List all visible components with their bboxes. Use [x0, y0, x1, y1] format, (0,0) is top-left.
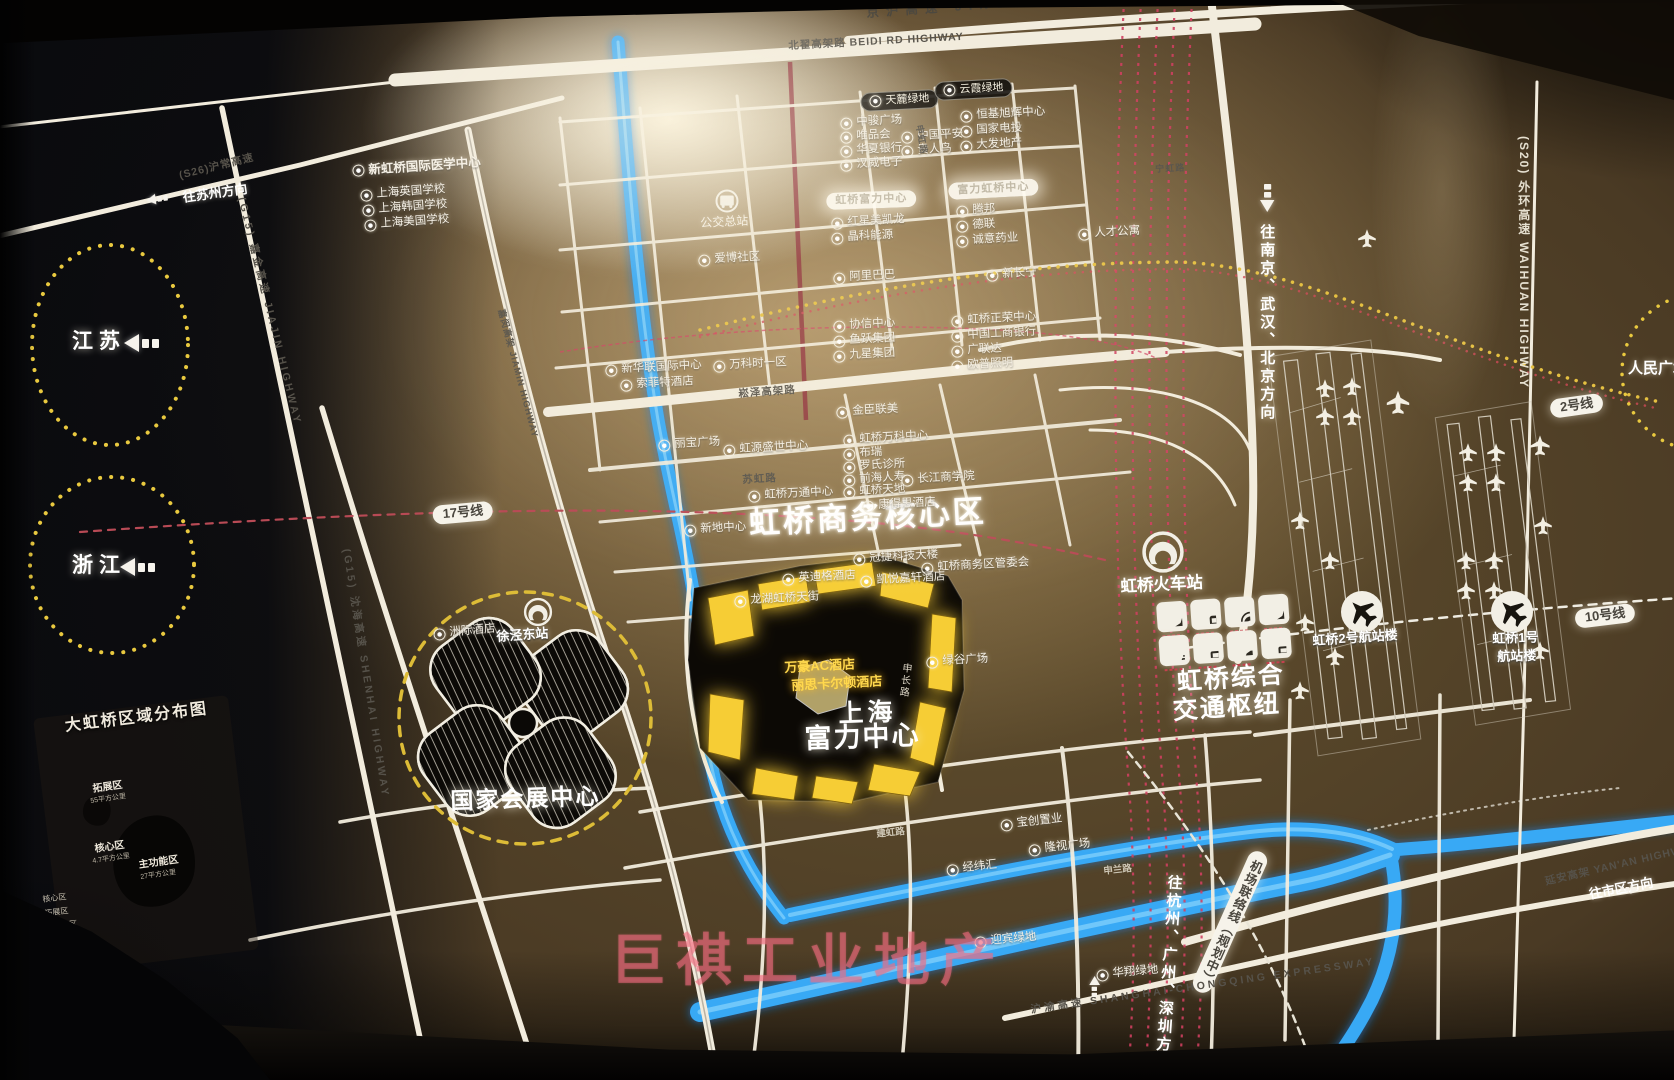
hub-transport-icon-grid — [1156, 593, 1292, 666]
renmin-square-label-text: 人民广场 — [1628, 360, 1674, 377]
tianlu-green-pill: 天麓绿地 — [860, 89, 939, 112]
arrow-head-icon — [1260, 200, 1274, 212]
poi-sofitel-text: 索菲特酒店 — [636, 375, 694, 391]
legend-tuozhan-text: 拓展区 — [44, 906, 69, 918]
poi-longfor-text: 龙湖虹桥天街 — [750, 591, 820, 608]
line2-pill: 2号线 — [1549, 393, 1604, 419]
poi-marriott-ac-text: 万豪AC酒店 — [784, 657, 855, 676]
hw-songze-text: 崧泽高架路 — [738, 384, 796, 400]
poi-ring-icon — [782, 573, 795, 586]
terminal2-label-text: 虹桥2号航站楼 — [1312, 628, 1398, 649]
hw-jinghu: 京沪高速 JINGHU HIGHWAY — [866, 0, 1162, 20]
arrow-head-icon — [1631, 885, 1639, 894]
arrow-zhejiang — [120, 558, 155, 576]
poi-marriott-ac: 万豪AC酒店 — [784, 657, 855, 676]
poi-zhongjun-text: 中骏广场 — [856, 114, 903, 130]
poi-delian-text: 德联 — [972, 218, 996, 232]
poi-xinhualian-text: 新华联国际中心 — [621, 359, 702, 376]
hub-tile-bus-icon — [1260, 627, 1292, 659]
poi-hongyuan-text: 虹源盛世中心 — [739, 440, 809, 457]
poi-ring-icon — [926, 656, 939, 669]
renmin-square-label: 人民广场 — [1628, 360, 1674, 377]
hub-tile-plane-icon — [1258, 593, 1290, 625]
poi-wantong-text: 虹桥万通中心 — [764, 486, 834, 503]
poi-pingan: 中国平安 — [901, 128, 964, 144]
scooter-icon — [1164, 640, 1185, 661]
poi-xiexin: 协信中心 — [833, 317, 896, 333]
arrow-suzhou — [146, 192, 168, 206]
rd-shenlan-text: 申兰路 — [1103, 864, 1133, 878]
bus-terminal-label-text: 公交总站 — [700, 214, 749, 230]
poi-dafa-text: 大发地产 — [976, 137, 1023, 153]
poi-alibaba-text: 阿里巴巴 — [849, 269, 896, 285]
hub-tile-metro-icon — [1224, 596, 1256, 628]
terminal1-label-1-text: 虹桥1号 — [1492, 630, 1539, 647]
poi-vanke-center: 虹桥万科中心 — [843, 430, 929, 448]
arrow-tail-icon — [138, 563, 145, 572]
poi-indigo-text: 英迪格酒店 — [798, 569, 856, 585]
necc-title-text: 国家会展中心 — [450, 783, 601, 815]
rd-suhong-text: 苏虹路 — [742, 472, 777, 486]
rd-shenlan: 申兰路 — [1103, 864, 1133, 878]
bus-terminal-label: 公交总站 — [700, 214, 749, 230]
station-label-text: 虹桥火车站 — [1120, 574, 1203, 597]
poi-ckgsb-text: 长江商学院 — [917, 470, 975, 486]
poi-baochuang: 宝创置业 — [1000, 813, 1063, 833]
poi-vanke-time: 万科时一区 — [713, 356, 787, 373]
poi-ring-icon — [698, 254, 711, 267]
poi-jinchen-text: 金臣联美 — [852, 403, 899, 419]
hw-jinghu-text: 京沪高速 JINGHU HIGHWAY — [866, 0, 1162, 20]
hub-tile-bus-icon — [1192, 632, 1224, 664]
rd-shenchang: 申长路 — [896, 662, 911, 699]
plane-icon — [1263, 599, 1284, 620]
dir-north-text: 往南京、武汉、北京方向 — [1258, 224, 1275, 422]
poi-ring-icon — [960, 140, 973, 153]
poi-ring-icon — [833, 272, 846, 285]
xujing-east-label-text: 徐泾东站 — [496, 626, 549, 645]
rd-jianhong-text: 建虹路 — [876, 827, 906, 841]
hw-beidi-text: 北翟高架路 BEIDI RD HIGHWAY — [788, 31, 964, 52]
legend-hexin-text: 核心区 — [42, 892, 67, 904]
jiangsu-label: 江苏 — [72, 330, 126, 354]
hub-tile-plane-icon — [1156, 601, 1188, 633]
poi-hyatt-text: 凯悦嘉轩酒店 — [876, 571, 946, 588]
plane-icon — [1161, 606, 1182, 627]
terminal1-label-2: 航站楼 — [1497, 649, 1537, 665]
legend-tuozhan: 拓展区 — [44, 906, 69, 918]
poi-longshi-text: 隆视广场 — [1044, 838, 1091, 856]
line17-pill-text: 17号线 — [442, 504, 484, 522]
poi-ring-icon — [951, 315, 964, 328]
hw-s26: (S26)沪常高速 — [178, 151, 255, 181]
poi-yuyue: 鱼跃集团 — [833, 332, 896, 348]
hub-title-line2-text: 交通枢纽 — [1172, 689, 1282, 725]
bus-icon — [1198, 637, 1219, 658]
airport-link-pill-text: 机场联络线（规划中） — [1196, 857, 1264, 986]
poi-baochuang-text: 宝创置业 — [1016, 813, 1063, 831]
poi-jiuxing-text: 九星集团 — [849, 347, 896, 363]
arrow-tail-icon — [1092, 993, 1097, 997]
poi-opple-text: 欧普照明 — [967, 357, 1014, 373]
poi-ring-icon — [951, 360, 964, 373]
inset-title-text: 大虹桥区域分布图 — [64, 700, 209, 736]
poi-ring-icon — [605, 364, 618, 377]
poi-yuyue-text: 鱼跃集团 — [849, 332, 896, 348]
poi-ring-icon — [869, 95, 882, 108]
arrow-tail-icon — [1626, 887, 1630, 892]
poi-jingweihui: 经纬汇 — [946, 859, 998, 877]
poi-ring-icon — [960, 125, 973, 138]
rf-title-line2-text: 富力中心 — [804, 720, 921, 755]
poi-libao: 丽宝广场 — [658, 436, 721, 452]
poi-zhengrong-text: 虹桥正荣中心 — [967, 311, 1037, 328]
poi-hengji-text: 恒基旭辉中心 — [976, 106, 1046, 123]
poi-opple: 欧普照明 — [951, 357, 1014, 373]
poi-ring-icon — [840, 159, 853, 172]
poi-vanke-time-text: 万科时一区 — [729, 356, 787, 372]
poi-us-school-text: 上海美国学校 — [380, 213, 450, 231]
rf-glare-pill-1-text: 虹桥富力中心 — [835, 192, 907, 207]
inset-title: 大虹桥区域分布图 — [64, 700, 209, 736]
poi-ring-icon — [658, 439, 671, 452]
poi-ring-icon — [831, 217, 844, 230]
necc-title: 国家会展中心 — [450, 783, 601, 815]
line10-pill-text: 10号线 — [1584, 606, 1626, 626]
hw-shenhai-text: (G15) 沈海高速 SHENHAI HIGHWAY — [340, 548, 391, 799]
legend-hexin: 核心区 — [42, 892, 67, 904]
poi-alibaba: 阿里巴巴 — [833, 269, 896, 285]
station-label: 虹桥火车站 — [1120, 574, 1203, 597]
poi-lvgu-text: 绿谷广场 — [942, 653, 989, 669]
rf-glare-pill-2: 富力虹桥中心 — [948, 178, 1039, 199]
arrow-head-icon — [1089, 976, 1100, 985]
poi-ring-icon — [734, 595, 747, 608]
hub-title-line2: 交通枢纽 — [1172, 689, 1282, 725]
poi-ckgsb: 长江商学院 — [901, 470, 975, 487]
poi-rencai: 人才公寓 — [1078, 225, 1141, 241]
terminal1-label-1: 虹桥1号 — [1492, 630, 1539, 647]
poi-ring-icon — [960, 110, 973, 123]
poi-jiuxing: 九星集团 — [833, 347, 896, 363]
poi-ring-icon — [723, 444, 736, 457]
poi-ritz-text: 丽思卡尔顿酒店 — [791, 674, 883, 694]
bus-icon — [1265, 633, 1286, 654]
hw-songze: 崧泽高架路 — [738, 384, 796, 400]
poi-ring-icon — [620, 379, 633, 392]
poi-ring-icon — [836, 406, 849, 419]
rf-title-line2: 富力中心 — [804, 720, 921, 755]
poi-vip-text: 唯品会 — [856, 128, 891, 143]
terminal2-label: 虹桥2号航站楼 — [1312, 628, 1398, 649]
rf-glare-pill-1: 虹桥富力中心 — [826, 190, 917, 210]
arrow-tail-icon — [157, 196, 162, 202]
arrow-tail-icon — [1264, 184, 1271, 190]
dir-north: 往南京、武汉、北京方向 — [1258, 224, 1275, 422]
poi-ring-icon — [840, 131, 853, 144]
poi-huaxiang-text: 华翔绿地 — [1112, 964, 1159, 981]
poi-sofitel: 索菲特酒店 — [620, 375, 694, 392]
poi-hyatt: 凯悦嘉轩酒店 — [860, 571, 946, 589]
arrow-tail-icon — [152, 339, 159, 348]
arrow-tail-icon — [1621, 887, 1625, 892]
poi-ring-icon — [843, 461, 856, 474]
poi-ring-icon — [713, 360, 726, 373]
poi-longfor: 龙湖虹桥天街 — [734, 591, 820, 609]
arrow-head-icon — [146, 194, 156, 206]
poi-ring-icon — [956, 235, 969, 248]
train-icon — [1195, 604, 1216, 625]
poi-tengbang-text: 腾邦 — [972, 203, 996, 217]
poi-ring-icon — [840, 117, 853, 130]
xujing-east-label: 徐泾东站 — [496, 626, 549, 645]
rd-jianhong: 建虹路 — [876, 827, 906, 841]
poi-libao-text: 丽宝广场 — [674, 436, 721, 452]
rf-glare-pill-2-text: 富力虹桥中心 — [957, 181, 1030, 197]
poi-hanwei: 汉威电子 — [840, 156, 903, 172]
poi-med-center: 新虹桥国际医学中心 — [352, 155, 481, 178]
poi-wantong: 虹桥万通中心 — [748, 486, 834, 504]
poi-ring-icon — [853, 553, 866, 566]
poi-ring-icon — [946, 863, 959, 876]
yunxia-green-pill: 云霞绿地 — [934, 78, 1013, 101]
poi-huaxia-bank-text: 华夏银行 — [856, 142, 903, 158]
poi-glodon: 广联达 — [951, 342, 1002, 358]
poi-ring-icon — [956, 220, 969, 233]
poi-lvgu: 绿谷广场 — [926, 653, 989, 669]
line17-pill: 17号线 — [432, 501, 494, 525]
poi-hongxing: 红星美凯龙 — [831, 213, 905, 230]
poi-hengji: 恒基旭辉中心 — [960, 106, 1046, 124]
hw-jiajin-text: (G15) 嘉金高速 JIAJIN HIGHWAY — [235, 196, 303, 426]
metro-icon — [1229, 601, 1250, 622]
poi-ring-icon — [362, 204, 375, 217]
arrow-tail-icon — [163, 195, 168, 201]
poi-ring-icon — [843, 434, 856, 447]
poi-ring-icon — [433, 628, 446, 641]
arrow-city — [1621, 885, 1639, 894]
poi-vanke-center-text: 虹桥万科中心 — [859, 430, 929, 447]
poi-ring-icon — [843, 448, 856, 461]
poi-ring-icon — [1078, 228, 1091, 241]
poi-spic: 国家电投 — [960, 122, 1023, 138]
arrow-tail-icon — [1092, 987, 1097, 991]
poi-huaxiang: 华翔绿地 — [1096, 964, 1159, 983]
poi-jinko: 晶科能源 — [831, 229, 894, 245]
poi-ring-icon — [684, 524, 697, 537]
poi-jinko-text: 晶科能源 — [847, 229, 894, 245]
hw-yanan-text: 延安高架 YAN'AN HIGHWAY — [1544, 841, 1674, 888]
arrow-tail-icon — [1264, 192, 1271, 198]
poi-ring-icon — [956, 205, 969, 218]
rd-ninghong: 宁虹路 — [1155, 162, 1186, 174]
hw-beidi: 北翟高架路 BEIDI RD HIGHWAY — [788, 31, 964, 52]
poi-longshi: 隆视广场 — [1028, 838, 1091, 858]
zone-zhugongneng-area-text: 27平方公里 — [140, 869, 177, 882]
car-icon — [1231, 635, 1252, 656]
poi-ring-icon — [901, 131, 914, 144]
arrow-tail-icon — [148, 563, 155, 572]
hub-tile-car-icon — [1226, 630, 1258, 662]
poi-intercontinental-text: 洲际酒店 — [449, 623, 496, 640]
hw-jiajin: (G15) 嘉金高速 JIAJIN HIGHWAY — [235, 196, 303, 426]
poi-ring-icon — [748, 490, 761, 503]
terminal1-label-2-text: 航站楼 — [1497, 649, 1537, 665]
line2-pill-text: 2号线 — [1559, 396, 1594, 415]
illuminated-area-map-board: 虹桥商务核心区上海富力中心国家会展中心虹桥综合交通枢纽虹桥火车站徐泾东站虹桥2号… — [0, 0, 1674, 1080]
poi-hongyuan: 虹源盛世中心 — [723, 440, 809, 458]
poi-ring-icon — [833, 350, 846, 363]
hw-s26-text: (S26)沪常高速 — [178, 151, 255, 181]
zone-zhugongneng-area: 27平方公里 — [140, 869, 177, 882]
poi-rencai-text: 人才公寓 — [1094, 225, 1141, 241]
arrow-jiangsu — [124, 334, 159, 352]
hw-shenhai: (G15) 沈海高速 SHENHAI HIGHWAY — [340, 548, 391, 799]
poi-hanwei-text: 汉威电子 — [856, 156, 903, 172]
rd-shenchang-text: 申长路 — [896, 662, 911, 699]
poi-icbc: 中国工商银行 — [951, 326, 1037, 344]
poi-tengbang: 腾邦 — [956, 203, 996, 218]
poi-ring-icon — [831, 232, 844, 245]
poi-ring-icon — [860, 575, 873, 588]
poi-tiandi: 虹桥天地 — [843, 483, 906, 499]
arrow-south — [1089, 976, 1100, 997]
poi-glodon-text: 广联达 — [967, 342, 1002, 357]
poi-intercontinental: 洲际酒店 — [433, 623, 496, 642]
poi-icbc-text: 中国工商银行 — [967, 326, 1037, 343]
poi-ring-icon — [843, 486, 856, 499]
yunxia-green-pill-text: 云霞绿地 — [959, 81, 1004, 96]
hw-waihuan: (S20) 外环高速 WAIHUAN HIGHWAY — [1516, 136, 1530, 389]
poi-aibo: 爱博社区 — [698, 251, 761, 267]
tianlu-green-pill-text: 天麓绿地 — [885, 92, 930, 107]
poi-tiandi-text: 虹桥天地 — [859, 483, 906, 499]
poi-chengyi: 诚意药业 — [956, 232, 1019, 248]
poi-xinchangning: 新长宁 — [986, 266, 1037, 282]
poi-ring-icon — [951, 345, 964, 358]
poi-ring-icon — [352, 164, 365, 177]
poi-ring-icon — [840, 145, 853, 158]
zhejiang-label: 浙江 — [72, 554, 126, 578]
hw-yanan: 延安高架 YAN'AN HIGHWAY — [1544, 841, 1674, 888]
line10-pill: 10号线 — [1574, 603, 1636, 629]
poi-ring-icon — [833, 320, 846, 333]
poi-ring-icon — [360, 189, 373, 202]
poi-dafa: 大发地产 — [960, 137, 1023, 153]
legend-zhugongneng: 主功能区 — [45, 919, 78, 932]
hub-tile-scooter-icon — [1158, 635, 1190, 667]
poi-med-center-text: 新虹桥国际医学中心 — [368, 155, 481, 177]
poi-ring-icon — [951, 330, 964, 343]
jiangsu-label-text: 江苏 — [72, 330, 126, 354]
poi-ritz: 丽思卡尔顿酒店 — [791, 674, 883, 694]
rd-ninghong-text: 宁虹路 — [1155, 162, 1186, 174]
poi-ring-icon — [986, 269, 999, 282]
legend-zhugongneng-text: 主功能区 — [45, 919, 78, 932]
poi-delian: 德联 — [956, 218, 996, 233]
arrow-head-icon — [124, 334, 139, 352]
rd-suhong: 苏虹路 — [742, 472, 777, 486]
hub-tile-train-icon — [1190, 598, 1222, 630]
poi-hongxing-text: 红星美凯龙 — [847, 213, 905, 229]
arrow-tail-icon — [142, 339, 149, 348]
hw-jiamin-text: 嘉闵高架 JIAMIN HIGHWAY — [496, 308, 540, 439]
poi-ring-icon — [862, 500, 875, 513]
arrow-head-icon — [120, 558, 135, 576]
photo-watermark: 巨祺工业地产 — [610, 916, 1006, 997]
zhejiang-label-text: 浙江 — [72, 554, 126, 578]
poi-jingweihui-text: 经纬汇 — [962, 859, 998, 876]
poi-jinchen: 金臣联美 — [836, 403, 899, 419]
poi-chengyi-text: 诚意药业 — [972, 232, 1019, 248]
arrow-north — [1260, 184, 1274, 212]
poi-spic-text: 国家电投 — [976, 122, 1023, 138]
poi-zhongjun: 中骏广场 — [840, 114, 903, 130]
poi-ring-icon — [943, 84, 956, 97]
poi-indigo: 英迪格酒店 — [782, 569, 856, 586]
poi-xindi: 新地中心 — [684, 521, 747, 537]
poi-ring-icon — [1028, 843, 1041, 856]
poi-ring-icon — [364, 219, 377, 232]
poi-guanweihui-text: 虹桥商务区管委会 — [937, 556, 1030, 574]
poi-aibo-text: 爱博社区 — [714, 251, 761, 267]
poi-xinchangning-text: 新长宁 — [1002, 266, 1037, 281]
hw-jiamin: 嘉闵高架 JIAMIN HIGHWAY — [496, 308, 540, 439]
poi-ring-icon — [1000, 818, 1013, 831]
poi-xiexin-text: 协信中心 — [849, 317, 896, 333]
poi-ring-icon — [901, 145, 914, 158]
poi-xindi-text: 新地中心 — [700, 521, 747, 537]
poi-ring-icon — [833, 335, 846, 348]
hw-waihuan-text: (S20) 外环高速 WAIHUAN HIGHWAY — [1516, 136, 1530, 389]
